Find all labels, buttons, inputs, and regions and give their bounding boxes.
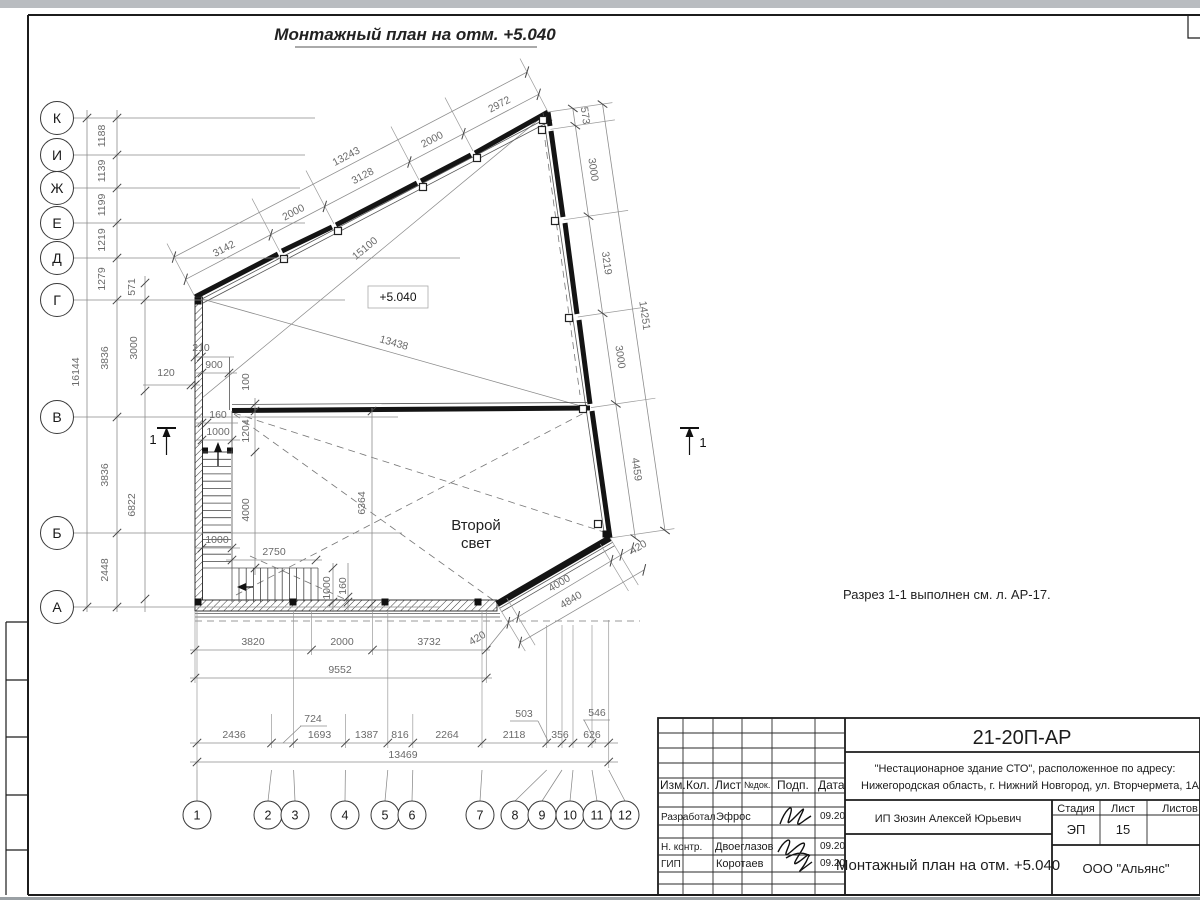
svg-text:210: 210 bbox=[192, 342, 210, 354]
svg-text:1139: 1139 bbox=[96, 160, 108, 183]
svg-text:356: 356 bbox=[551, 729, 569, 741]
svg-text:2118: 2118 bbox=[503, 729, 526, 741]
svg-text:1693: 1693 bbox=[308, 729, 332, 741]
svg-text:3219: 3219 bbox=[599, 251, 614, 276]
project-address-2: Нижегородская область, г. Нижний Новгоро… bbox=[861, 780, 1200, 792]
svg-text:Подп.: Подп. bbox=[777, 778, 809, 792]
svg-text:3: 3 bbox=[292, 809, 299, 823]
svg-text:Н. контр.: Н. контр. bbox=[661, 842, 702, 853]
svg-text:546: 546 bbox=[588, 707, 606, 719]
staircase bbox=[202, 357, 318, 602]
svg-text:№док.: №док. bbox=[744, 780, 770, 790]
second-light-label-2: свет bbox=[461, 535, 491, 552]
svg-text:816: 816 bbox=[391, 729, 409, 741]
svg-text:В: В bbox=[52, 409, 61, 425]
svg-text:Стадия: Стадия bbox=[1057, 803, 1095, 815]
doc-number: 21-20П-АР bbox=[973, 727, 1072, 749]
signature-icon bbox=[778, 808, 812, 871]
svg-text:1: 1 bbox=[699, 435, 706, 450]
svg-text:100: 100 bbox=[240, 373, 252, 391]
svg-text:16144: 16144 bbox=[70, 357, 82, 386]
svg-text:Лист: Лист bbox=[715, 778, 742, 792]
svg-text:4: 4 bbox=[342, 809, 349, 823]
svg-text:1199: 1199 bbox=[96, 194, 108, 217]
svg-text:4459: 4459 bbox=[629, 457, 644, 482]
svg-text:1: 1 bbox=[149, 432, 156, 447]
svg-text:4840: 4840 bbox=[558, 589, 584, 611]
svg-text:1204: 1204 bbox=[240, 419, 252, 443]
svg-text:09.20: 09.20 bbox=[820, 858, 845, 869]
sheet-number: 15 bbox=[1116, 822, 1130, 837]
section-marker-left: 1 bbox=[149, 427, 176, 455]
svg-text:4000: 4000 bbox=[240, 498, 252, 522]
svg-text:120: 120 bbox=[157, 367, 175, 379]
svg-text:724: 724 bbox=[304, 713, 322, 725]
dim-diag-15100: 15100 bbox=[350, 235, 380, 263]
svg-text:160: 160 bbox=[337, 577, 349, 595]
svg-text:420: 420 bbox=[628, 538, 649, 557]
svg-text:2: 2 bbox=[265, 809, 272, 823]
svg-text:3000: 3000 bbox=[128, 336, 140, 360]
svg-text:1188: 1188 bbox=[96, 125, 108, 148]
svg-text:Кол.: Кол. bbox=[686, 778, 710, 792]
svg-text:13243: 13243 bbox=[331, 144, 363, 168]
svg-text:571: 571 bbox=[126, 278, 138, 296]
svg-text:3142: 3142 bbox=[211, 238, 237, 260]
svg-text:ГИП: ГИП bbox=[661, 859, 681, 870]
svg-text:5: 5 bbox=[382, 809, 389, 823]
svg-text:3836: 3836 bbox=[99, 463, 111, 487]
section-note: Разрез 1-1 выполнен см. л. АР-17. bbox=[843, 587, 1051, 602]
svg-text:2448: 2448 bbox=[99, 558, 111, 582]
svg-text:13469: 13469 bbox=[388, 749, 417, 761]
sheet-heading: Монтажный план на отм. +5.040 bbox=[274, 25, 556, 47]
svg-text:160: 160 bbox=[209, 409, 227, 421]
svg-text:8: 8 bbox=[512, 809, 519, 823]
elevation-label: +5.040 bbox=[368, 286, 428, 308]
svg-text:6: 6 bbox=[409, 809, 416, 823]
svg-text:Д: Д bbox=[52, 250, 62, 266]
svg-text:Г: Г bbox=[53, 292, 61, 308]
svg-text:2972: 2972 bbox=[486, 94, 512, 116]
svg-text:Е: Е bbox=[52, 215, 61, 231]
svg-text:Ж: Ж bbox=[51, 180, 64, 196]
bottom-dim-chains: 3820 2000 3732 420 9552 2436 1693 1387 8… bbox=[183, 612, 639, 829]
svg-text:Двоеглазов: Двоеглазов bbox=[715, 841, 774, 853]
svg-text:09.20: 09.20 bbox=[820, 811, 845, 822]
svg-text:3836: 3836 bbox=[99, 346, 111, 370]
svg-text:К: К bbox=[53, 110, 62, 126]
stage-value: ЭП bbox=[1067, 822, 1086, 837]
svg-text:900: 900 bbox=[205, 359, 223, 371]
svg-text:503: 503 bbox=[515, 708, 533, 720]
svg-text:И: И bbox=[52, 147, 62, 163]
svg-text:11: 11 bbox=[591, 809, 604, 823]
svg-text:А: А bbox=[52, 599, 62, 615]
svg-text:Эфрос: Эфрос bbox=[716, 811, 751, 823]
page-title: Монтажный план на отм. +5.040 bbox=[274, 25, 556, 44]
drawing-sheet: Монтажный план на отм. +5.040 15100 1343… bbox=[0, 0, 1200, 900]
svg-text:7: 7 bbox=[477, 809, 484, 823]
company-name: ООО "Альянс" bbox=[1083, 861, 1170, 876]
svg-text:2000: 2000 bbox=[419, 129, 445, 151]
svg-text:2000: 2000 bbox=[280, 202, 306, 224]
svg-text:Листов: Листов bbox=[1162, 803, 1198, 815]
svg-text:1000: 1000 bbox=[206, 426, 230, 438]
svg-text:2436: 2436 bbox=[222, 729, 246, 741]
svg-text:6364: 6364 bbox=[356, 491, 368, 515]
svg-text:Лист: Лист bbox=[1111, 803, 1135, 815]
svg-text:3128: 3128 bbox=[350, 165, 376, 187]
svg-text:Дата: Дата bbox=[818, 778, 845, 792]
svg-text:2000: 2000 bbox=[330, 636, 354, 648]
svg-text:1000: 1000 bbox=[205, 534, 229, 546]
title-block: 21-20П-АР "Нестационарное здание СТО", р… bbox=[658, 718, 1200, 895]
project-address-1: "Нестационарное здание СТО", расположенн… bbox=[875, 763, 1176, 775]
svg-text:9: 9 bbox=[539, 809, 546, 823]
svg-text:6822: 6822 bbox=[126, 493, 138, 517]
svg-text:2750: 2750 bbox=[262, 546, 286, 558]
svg-text:3732: 3732 bbox=[417, 636, 441, 648]
svg-text:1: 1 bbox=[194, 809, 201, 823]
sheet-title: Монтажный план на отм. +5.040 bbox=[836, 857, 1060, 874]
left-axes: К И Ж Е Д Г В Б А 1188 1139 1199 1219 12… bbox=[41, 102, 461, 624]
section-marker-right: 1 bbox=[680, 427, 707, 455]
axis-bubbles-left: К И Ж Е Д Г В Б А bbox=[41, 102, 74, 624]
svg-text:1387: 1387 bbox=[355, 729, 379, 741]
chamfer-dim-chains: 4000 420 4840 bbox=[497, 538, 650, 651]
svg-text:573: 573 bbox=[578, 106, 592, 125]
svg-text:10: 10 bbox=[563, 809, 577, 823]
svg-text:Разработал: Разработал bbox=[661, 811, 716, 823]
svg-text:Б: Б bbox=[52, 525, 61, 541]
svg-text:2264: 2264 bbox=[435, 729, 459, 741]
svg-text:14251: 14251 bbox=[636, 300, 652, 331]
svg-text:Изм.: Изм. bbox=[660, 778, 686, 792]
svg-text:Коротаев: Коротаев bbox=[716, 858, 764, 870]
svg-text:09.20: 09.20 bbox=[820, 841, 845, 852]
svg-text:420: 420 bbox=[467, 629, 488, 648]
svg-text:1219: 1219 bbox=[96, 228, 108, 252]
svg-text:9552: 9552 bbox=[328, 664, 352, 676]
axis-bubbles-bottom: 1 2 3 4 5 6 7 8 9 10 11 12 bbox=[183, 801, 639, 829]
svg-text:1279: 1279 bbox=[96, 267, 108, 291]
elevation-value: +5.040 bbox=[379, 290, 416, 304]
svg-text:1000: 1000 bbox=[321, 576, 333, 600]
svg-text:12: 12 bbox=[618, 809, 632, 823]
svg-text:3000: 3000 bbox=[612, 345, 627, 370]
stair-up-arrow-icon bbox=[214, 442, 222, 466]
svg-text:3820: 3820 bbox=[241, 636, 265, 648]
page-edge-top bbox=[0, 0, 1200, 8]
svg-text:3000: 3000 bbox=[585, 157, 600, 182]
client-name: ИП Зюзин Алексей Юрьевич bbox=[875, 813, 1022, 825]
second-light-label-1: Второй bbox=[451, 517, 501, 534]
